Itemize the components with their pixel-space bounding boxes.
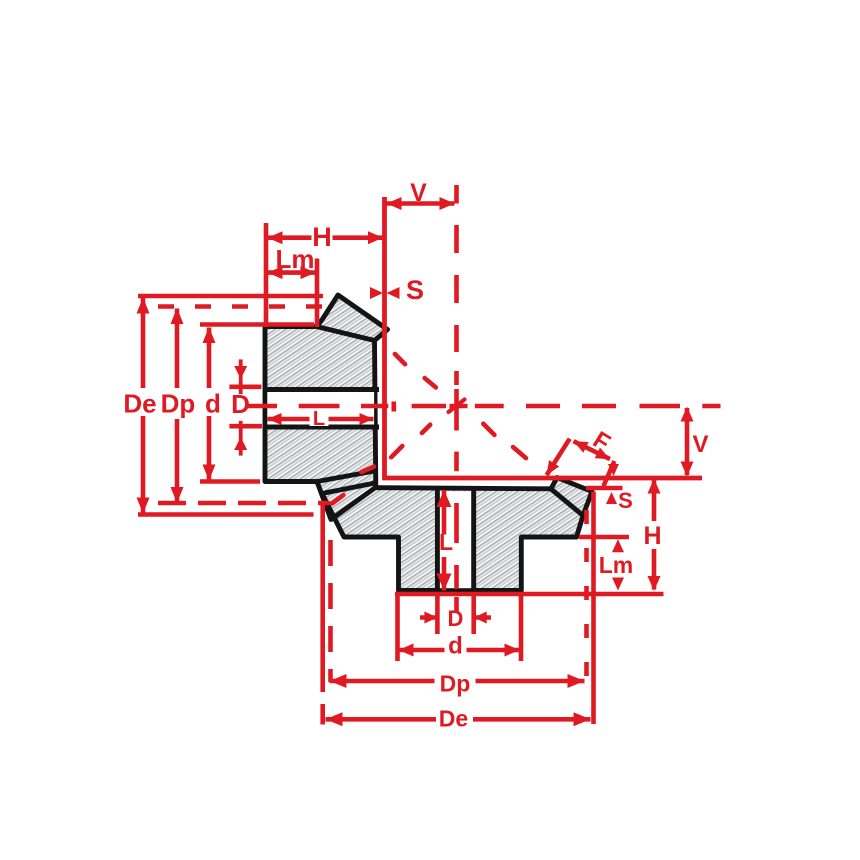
svg-text:L: L	[313, 408, 325, 430]
svg-text:V: V	[410, 179, 427, 207]
svg-text:V: V	[692, 431, 708, 458]
svg-text:Dp: Dp	[440, 671, 471, 697]
svg-text:Dp: Dp	[161, 389, 196, 419]
svg-text:S: S	[618, 488, 633, 513]
svg-text:d: d	[205, 389, 221, 419]
svg-text:D: D	[448, 606, 464, 631]
svg-text:De: De	[123, 389, 156, 419]
svg-text:L: L	[439, 529, 453, 555]
svg-text:d: d	[448, 633, 463, 660]
svg-text:H: H	[312, 222, 332, 252]
svg-text:Lm: Lm	[599, 552, 634, 578]
svg-text:De: De	[439, 706, 468, 732]
svg-text:D: D	[231, 389, 250, 419]
svg-text:H: H	[643, 522, 661, 550]
svg-text:Lm: Lm	[276, 244, 315, 274]
svg-text:S: S	[406, 275, 424, 305]
